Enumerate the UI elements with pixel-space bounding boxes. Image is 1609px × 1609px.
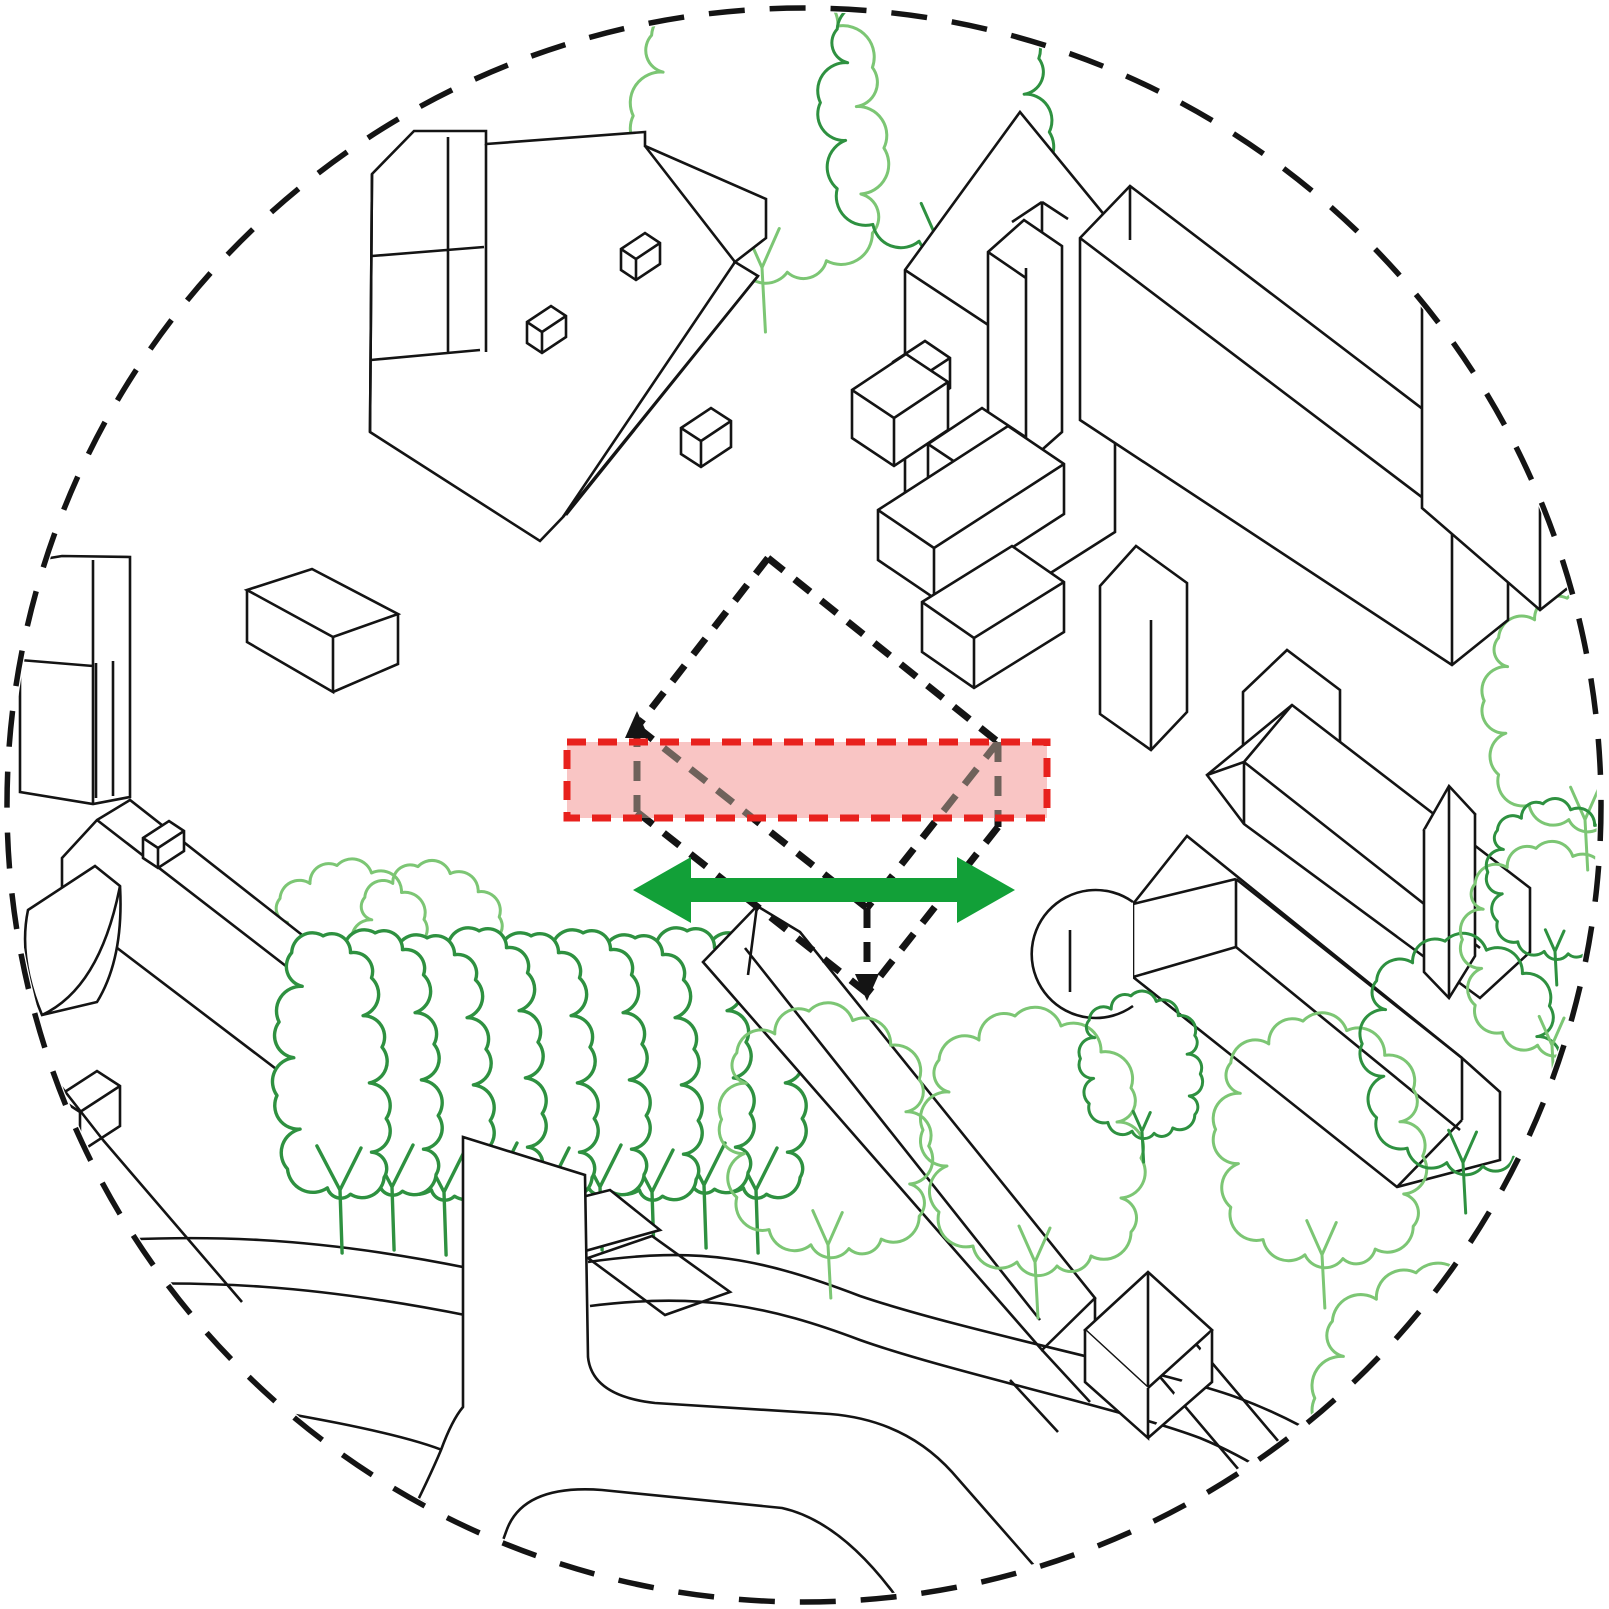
tree-right-edge (1482, 590, 1609, 870)
tree-front-8-canopy (1312, 1263, 1559, 1558)
diagram-canvas (0, 0, 1609, 1609)
bar-extension-lines (1010, 1350, 1090, 1432)
movement-double-arrow-icon (633, 857, 1015, 923)
church-apse (1032, 890, 1133, 1018)
street-lines-corner (1245, 1448, 1560, 1609)
tree-row-1 (272, 933, 390, 1253)
tree-row-1-canopy (272, 933, 390, 1198)
left-tower-roof (247, 569, 398, 637)
building-top-left (370, 131, 766, 541)
tree-front-8 (1312, 1263, 1559, 1605)
left-lower-box (57, 1071, 120, 1152)
ramp-lower-2 (95, 1432, 440, 1505)
ramp-left-1 (20, 1238, 468, 1268)
up-arrowhead-icon (625, 711, 649, 738)
tree-front-8-trunk (1420, 1504, 1454, 1605)
axonometric-site-diagram (0, 0, 1609, 1609)
thin-slab (1100, 546, 1187, 750)
